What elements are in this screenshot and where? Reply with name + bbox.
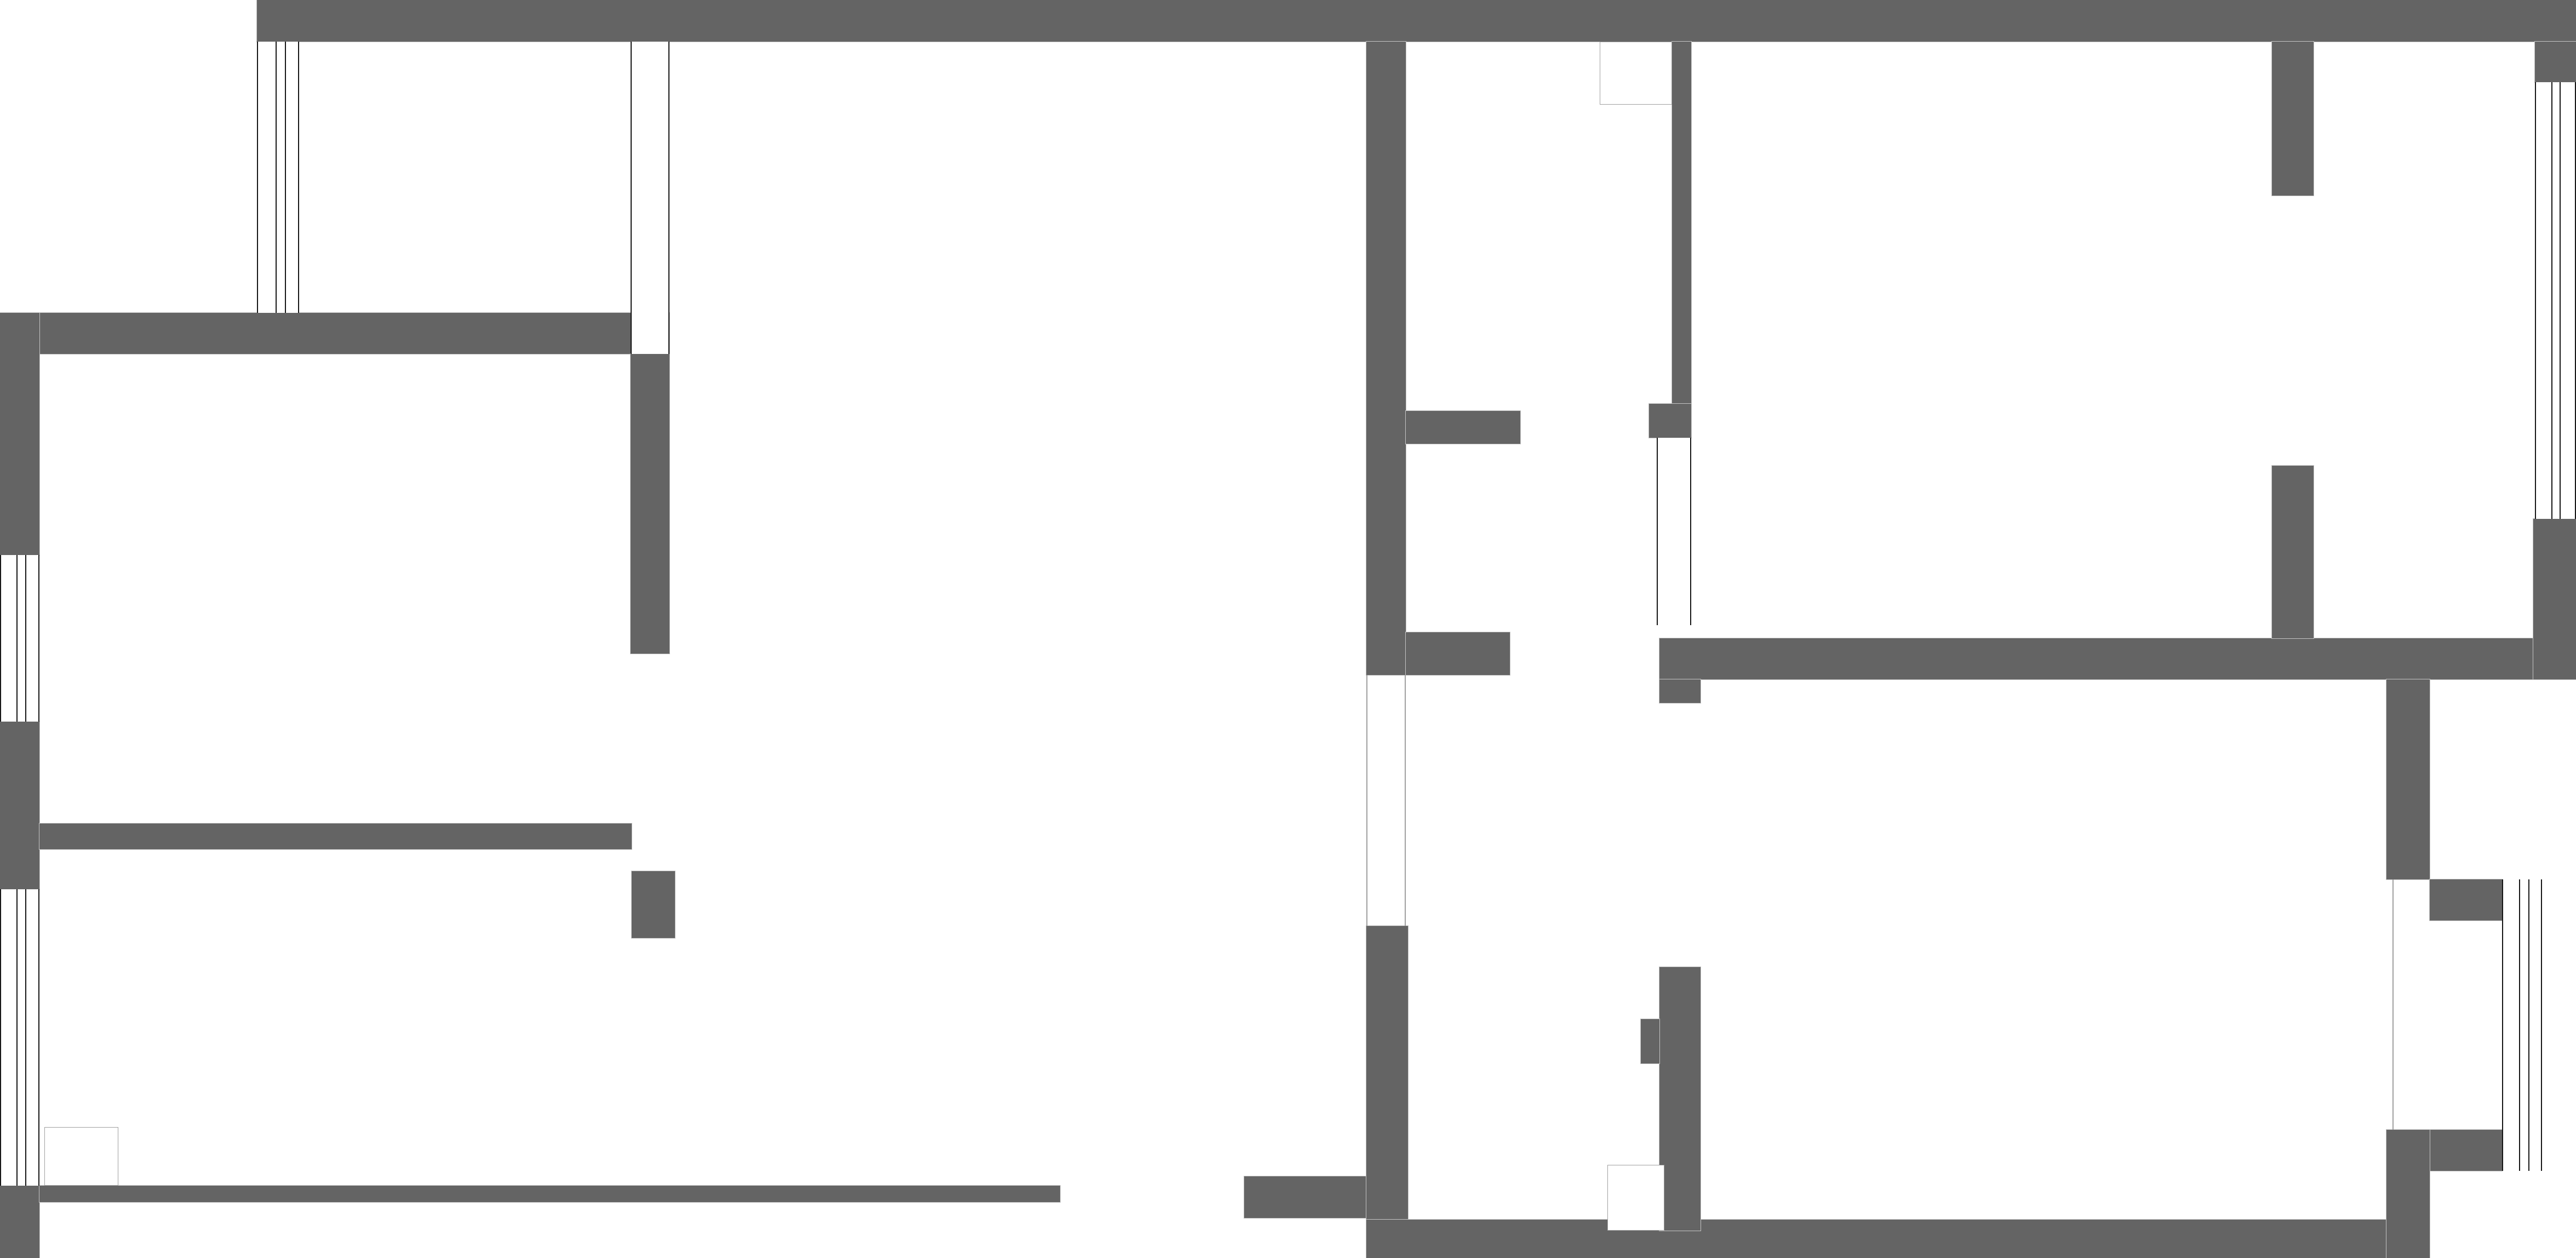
left-wall-middle-pier xyxy=(0,722,39,889)
left-divider-door-jamb-block xyxy=(632,871,675,938)
entry-bay-window xyxy=(257,42,299,313)
left-window-upper-glazing-line-3 xyxy=(25,555,26,722)
left-rooms-divider-wall xyxy=(39,824,632,849)
exterior-top-wall xyxy=(257,0,2576,42)
wc-shaft-box xyxy=(1600,42,1672,105)
left-window-upper-glazing-line-2 xyxy=(16,555,18,722)
bedroom1-right-window-glazing-line-2 xyxy=(2551,82,2552,519)
bedroom1-right-window-glazing-line-3 xyxy=(2560,82,2561,519)
room1-glass-partition xyxy=(631,42,669,354)
room1-right-wall xyxy=(631,354,669,654)
left-wall-upper-pier xyxy=(0,313,39,555)
entry-bay-window-glazing-line-2 xyxy=(276,42,277,313)
divider-left-end-block xyxy=(1659,679,1701,703)
hall-door-jamb-right xyxy=(1405,675,1406,926)
right-window-bottom-block xyxy=(2533,519,2576,679)
center-wall-a-lower xyxy=(1366,926,1408,1231)
center-wall-b-lower xyxy=(1659,967,1701,1231)
room1-top-wall xyxy=(0,313,669,354)
bedroom2-right-wall xyxy=(2386,679,2430,879)
south-exterior-wall-mid xyxy=(1366,1220,2430,1258)
left-window-lower-glazing-line-1 xyxy=(0,889,1,1186)
left-wall-bottom-pier xyxy=(0,1186,39,1258)
left-window-upper-glazing-line-1 xyxy=(0,555,1,722)
left-window-lower xyxy=(0,889,39,1186)
hall-closet-box xyxy=(1607,1165,1664,1231)
entry-bay-window-glazing-line-4 xyxy=(298,42,299,313)
bedroom1-right-window xyxy=(2535,82,2576,519)
bedroom2-window-top-block xyxy=(2430,879,2502,920)
center-wall-a-upper xyxy=(1366,42,1406,675)
floor-plan xyxy=(0,0,2576,1258)
hall-door-jamb-left xyxy=(1366,675,1367,926)
entry-bay-window-glazing-line-3 xyxy=(285,42,286,313)
center-wall-b-jog-block xyxy=(1649,404,1691,438)
left-window-lower-glazing-line-4 xyxy=(38,889,39,1186)
bedroom2-corner-column xyxy=(2386,1130,2430,1258)
bedroom2-door-jamb xyxy=(2392,879,2394,1130)
left-window-lower-glazing-line-2 xyxy=(16,889,18,1186)
center-wall-b-notch xyxy=(1641,1019,1659,1063)
bottom-left-exterior-wall xyxy=(39,1186,1060,1202)
bedroom2-right-window-glazing-line-4 xyxy=(2541,879,2542,1171)
left-window-upper-glazing-line-4 xyxy=(38,555,39,722)
hallway-glass-band xyxy=(1657,438,1691,625)
hallway-glass-band-glazing-line-1 xyxy=(1657,438,1658,625)
wc-south-stub xyxy=(1406,411,1520,444)
left-window-upper xyxy=(0,555,39,722)
room1-glass-partition-glazing-line-1 xyxy=(631,42,632,354)
bedroom1-closet-stub-lower xyxy=(2272,466,2314,638)
bedroom2-right-window-glazing-line-2 xyxy=(2519,879,2520,1171)
entry-step-box xyxy=(44,1127,118,1186)
room1-glass-partition-glazing-line-2 xyxy=(668,42,669,354)
bedrooms-divider-wall xyxy=(1659,638,2576,679)
entry-bay-window-glazing-line-1 xyxy=(257,42,258,313)
hallway-glass-band-glazing-line-2 xyxy=(1690,438,1691,625)
bedroom2-right-window-glazing-line-3 xyxy=(2528,879,2529,1171)
left-window-lower-glazing-line-3 xyxy=(25,889,26,1186)
bedroom1-right-window-glazing-line-1 xyxy=(2535,82,2536,519)
entry-south-wall-chunk xyxy=(1244,1176,1366,1218)
bedroom2-right-window xyxy=(2502,879,2542,1171)
entry-nook-stub xyxy=(1406,632,1510,675)
center-wall-b-upper xyxy=(1672,42,1691,404)
bedroom2-right-window-glazing-line-1 xyxy=(2502,879,2503,1171)
top-right-corner-block xyxy=(2535,42,2576,82)
bedroom1-closet-stub-upper xyxy=(2272,42,2314,196)
